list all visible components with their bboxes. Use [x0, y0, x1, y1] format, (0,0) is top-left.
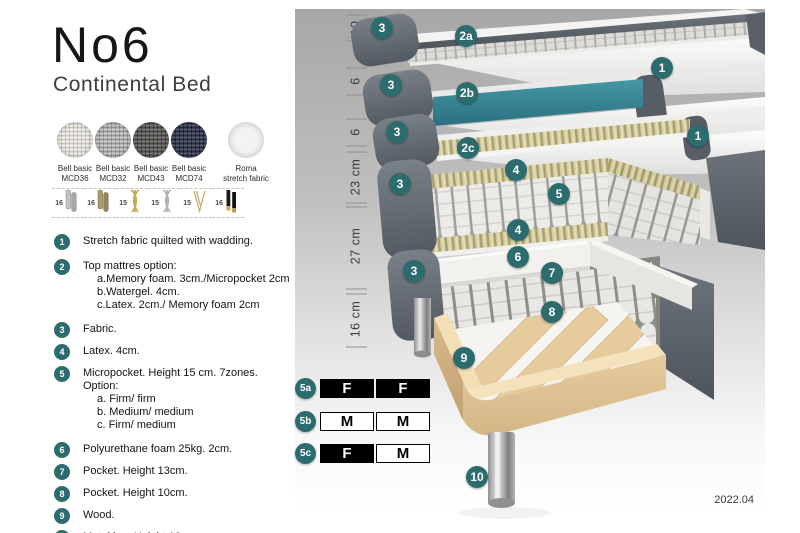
hairpin-leg-icon: [192, 188, 207, 219]
callout-badge-2b: 2b: [456, 82, 478, 104]
feature-sub-line: a. Firm/ firm: [83, 393, 294, 406]
feature-list: 1Stretch fabric quilted with wadding.2To…: [54, 234, 294, 533]
feature-main-line: Polyurethane foam 25kg. 2cm.: [83, 443, 232, 456]
black-gold-leg-icon: [224, 188, 239, 219]
feature-main-line: Fabric.: [83, 323, 117, 336]
fabric-swatch-circle: [171, 122, 207, 158]
firmness-bar: FM: [320, 444, 430, 463]
feature-main-line: Stretch fabric quilted with wadding.: [83, 235, 253, 248]
leg-option: 16: [212, 188, 244, 218]
callout-badge-3: 3: [403, 260, 425, 282]
leg-options-row: 161615151516: [52, 188, 244, 218]
feature-text: Stretch fabric quilted with wadding.: [83, 234, 253, 250]
callout-badge-1: 1: [651, 57, 673, 79]
firmness-badge-5a: 5a: [295, 378, 316, 399]
feature-number-badge: 6: [54, 442, 70, 458]
fabric-swatch-label: Romastretch fabric: [220, 164, 272, 183]
firmness-row-5c: 5cFM: [295, 443, 430, 464]
feature-item: 1Stretch fabric quilted with wadding.: [54, 234, 294, 250]
feature-sub-line: a.Memory foam. 3cm./Micropocket 2cm: [83, 273, 290, 286]
callout-badge-3: 3: [386, 121, 408, 143]
fabric-swatch-circle: [57, 122, 93, 158]
cylinder-bronze-leg-icon: [96, 188, 111, 219]
product-subtitle: Continental Bed: [53, 73, 211, 97]
fabric-swatch: Romastretch fabric: [227, 122, 265, 183]
feature-sub-line: b.Watergel. 4cm.: [83, 286, 290, 299]
firmness-row-5a: 5aFF: [295, 378, 430, 399]
feature-main-line: Top mattres option:: [83, 260, 290, 273]
leg-height-label: 16: [52, 200, 63, 207]
feature-item: 5Micropocket. Height 15 cm. 7zones. Opti…: [54, 366, 294, 432]
callout-badge-10: 10: [466, 466, 488, 488]
cylinder-silver-leg-icon: [64, 188, 79, 219]
ruler-label: 6: [348, 77, 362, 84]
callout-badge-4: 4: [505, 159, 527, 181]
firmness-badge-5c: 5c: [295, 443, 316, 464]
feature-number-badge: 5: [54, 366, 70, 382]
leg-height-label: 15: [180, 200, 191, 207]
feature-text: Top mattres option:a.Memory foam. 3cm./M…: [83, 259, 290, 312]
feature-item: 9Wood.: [54, 508, 294, 524]
feature-main-line: Pocket. Height 10cm.: [83, 487, 188, 500]
callout-badge-3: 3: [389, 173, 411, 195]
leg-height-label: 15: [116, 200, 127, 207]
firmness-cell: M: [320, 412, 374, 431]
firmness-bar: FF: [320, 379, 430, 398]
fabric-swatch-circle: [133, 122, 169, 158]
version-label: 2022.04: [702, 494, 754, 506]
callout-badge-3: 3: [380, 74, 402, 96]
feature-sub-line: c.Latex. 2cm./ Memory foam 2cm: [83, 299, 290, 312]
callout-badge-9: 9: [453, 347, 475, 369]
callout-badge-5: 5: [548, 183, 570, 205]
fabric-swatch-row: Bell basicMCD36Bell basicMCD32Bell basic…: [56, 122, 265, 183]
swatch-label-line1: Bell basic: [163, 164, 215, 174]
firmness-cell: F: [320, 379, 374, 398]
feature-number-badge: 8: [54, 486, 70, 502]
callout-badge-4: 4: [507, 219, 529, 241]
feature-number-badge: 7: [54, 464, 70, 480]
metal-leg-back: [414, 298, 431, 354]
ruler-label: 23 cm: [348, 159, 362, 196]
feature-number-badge: 9: [54, 508, 70, 524]
ruler-label: 16 cm: [348, 301, 362, 338]
twisted-silver-leg-icon: [160, 188, 175, 219]
feature-text: Polyurethane foam 25kg. 2cm.: [83, 442, 232, 458]
firmness-row-5b: 5bMM: [295, 411, 430, 432]
callout-badge-7: 7: [541, 262, 563, 284]
feature-item: 6Polyurethane foam 25kg. 2cm.: [54, 442, 294, 458]
swatch-label-line2: MCD74: [163, 174, 215, 184]
leg-option: 16: [52, 188, 84, 218]
leg-option: 15: [148, 188, 180, 218]
feature-number-badge: 1: [54, 234, 70, 250]
swatch-label-line1: Roma: [220, 164, 272, 174]
feature-text: Pocket. Height 10cm.: [83, 486, 188, 502]
firmness-badge-5b: 5b: [295, 411, 316, 432]
callout-badge-1: 1: [687, 125, 709, 147]
feature-number-badge: 2: [54, 259, 70, 275]
feature-item: 4Latex. 4cm.: [54, 344, 294, 360]
feature-text: Latex. 4cm.: [83, 344, 140, 360]
feature-text: Fabric.: [83, 322, 117, 338]
swatch-label-line2: stretch fabric: [220, 174, 272, 184]
firmness-cell: F: [376, 379, 430, 398]
feature-sub-line: b. Medium/ medium: [83, 406, 294, 419]
leg-option: 15: [116, 188, 148, 218]
feature-text: Pocket. Height 13cm.: [83, 464, 188, 480]
feature-main-line: Micropocket. Height 15 cm. 7zones. Optio…: [83, 367, 294, 393]
feature-main-line: Wood.: [83, 509, 115, 522]
firmness-cell: F: [320, 444, 374, 463]
feature-number-badge: 4: [54, 344, 70, 360]
feature-main-line: Pocket. Height 13cm.: [83, 465, 188, 478]
callout-badge-2a: 2a: [455, 25, 477, 47]
fabric-swatch-circle: [228, 122, 264, 158]
callout-badge-6: 6: [507, 246, 529, 268]
leg-height-label: 15: [148, 200, 159, 207]
callout-badge-2c: 2c: [457, 137, 479, 159]
feature-text: Wood.: [83, 508, 115, 524]
twisted-gold-leg-icon: [128, 188, 143, 219]
feature-item: 2Top mattres option:a.Memory foam. 3cm./…: [54, 259, 294, 312]
leg-option: 15: [180, 188, 212, 218]
feature-item: 7Pocket. Height 13cm.: [54, 464, 294, 480]
feature-text: Micropocket. Height 15 cm. 7zones. Optio…: [83, 366, 294, 432]
feature-item: 8Pocket. Height 10cm.: [54, 486, 294, 502]
page: 106623 cm27 cm16 cm: [0, 0, 800, 533]
fabric-swatch-label: Bell basicMCD74: [163, 164, 215, 183]
firmness-cell: M: [376, 444, 430, 463]
leg-option: 16: [84, 188, 116, 218]
callout-badge-3: 3: [371, 17, 393, 39]
feature-item: 3Fabric.: [54, 322, 294, 338]
feature-main-line: Latex. 4cm.: [83, 345, 140, 358]
callout-badge-8: 8: [541, 301, 563, 323]
ruler-label: 6: [348, 128, 362, 135]
ruler-label: 27 cm: [348, 228, 362, 265]
fabric-swatch-circle: [95, 122, 131, 158]
metal-leg-front: [488, 432, 515, 504]
leg-height-label: 16: [84, 200, 95, 207]
fabric-swatch: Bell basicMCD74: [170, 122, 208, 183]
feature-number-badge: 3: [54, 322, 70, 338]
firmness-cell: M: [376, 412, 430, 431]
firmness-bar: MM: [320, 412, 430, 431]
product-title: No6: [52, 16, 153, 74]
leg-height-label: 16: [212, 200, 223, 207]
feature-sub-line: c. Firm/ medium: [83, 419, 294, 432]
